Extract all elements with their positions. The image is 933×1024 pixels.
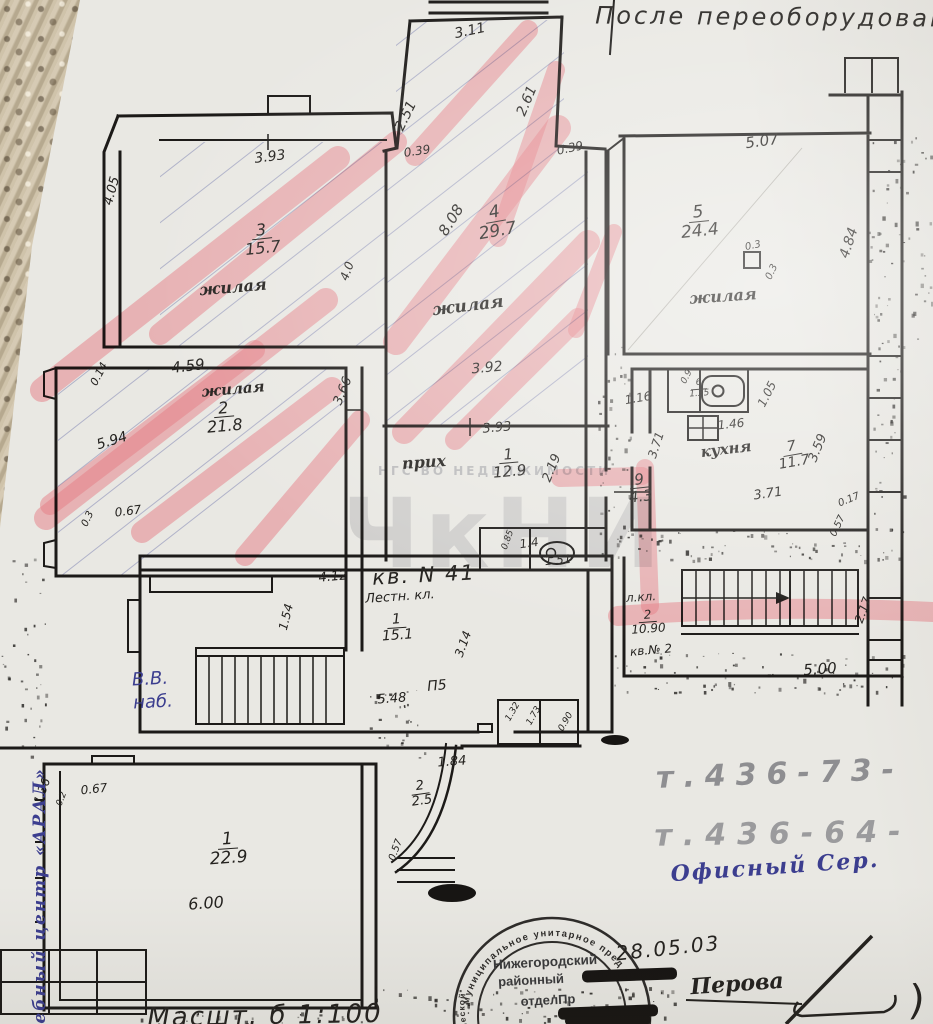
room-3-label: 315.7	[242, 219, 281, 258]
sink-drain-icon	[713, 386, 724, 397]
scale-label: Масшт. б 1:100	[147, 999, 383, 1024]
stamp-line-3: отделПр	[520, 991, 576, 1009]
dim-label: 4.12	[318, 568, 348, 585]
street-note-line1: В.В.	[131, 668, 168, 691]
street-vertical-note: учебный центр «АРАЛ»	[30, 767, 50, 1024]
room-2-label: 221.8	[205, 398, 244, 437]
redaction-mark	[565, 1015, 651, 1024]
paper-crease	[628, 148, 802, 350]
dim-label: 6.00	[188, 892, 225, 913]
room-1-label: 112.9	[491, 445, 527, 481]
room-6-label: 61.35	[688, 378, 709, 400]
photo-of-floor-plan: НГС ВО НЕДВИЖИМОСТИ ЧкНИ	[0, 0, 933, 1024]
paper-sheet: НГС ВО НЕДВИЖИМОСТИ ЧкНИ	[0, 0, 933, 1024]
dim-label: 5.00	[803, 659, 838, 679]
dim-label: 1.4	[519, 535, 540, 552]
dim-label: 3.93	[482, 419, 512, 436]
street-note-line2: наб.	[133, 690, 174, 713]
room-4-label: 429.7	[474, 200, 518, 244]
dim-label: П5	[427, 677, 448, 695]
room-1-type: прих	[401, 451, 446, 473]
room-9-label: 94.3	[626, 470, 653, 506]
dim-label: 3.92	[471, 359, 503, 378]
room-1-ground-label: 122.9	[208, 829, 248, 869]
stair-2-label: 210.90	[630, 607, 666, 636]
dim-label: 0.67	[80, 781, 108, 798]
room-5-label: 524.4	[678, 201, 720, 242]
stair-note: л.кл.	[625, 589, 656, 605]
entry-2-label: 22.5	[409, 778, 434, 810]
dim-label: 1.46	[717, 416, 745, 433]
dim-label: 1.84	[437, 754, 467, 771]
stairwell-room-label: 115.1	[380, 611, 413, 644]
title-annotation: После переоборудован	[595, 1, 933, 32]
dim-label: 1.51	[544, 552, 572, 568]
room-7-label: 711.7	[775, 437, 811, 473]
dim-label: 5.48	[377, 691, 407, 708]
